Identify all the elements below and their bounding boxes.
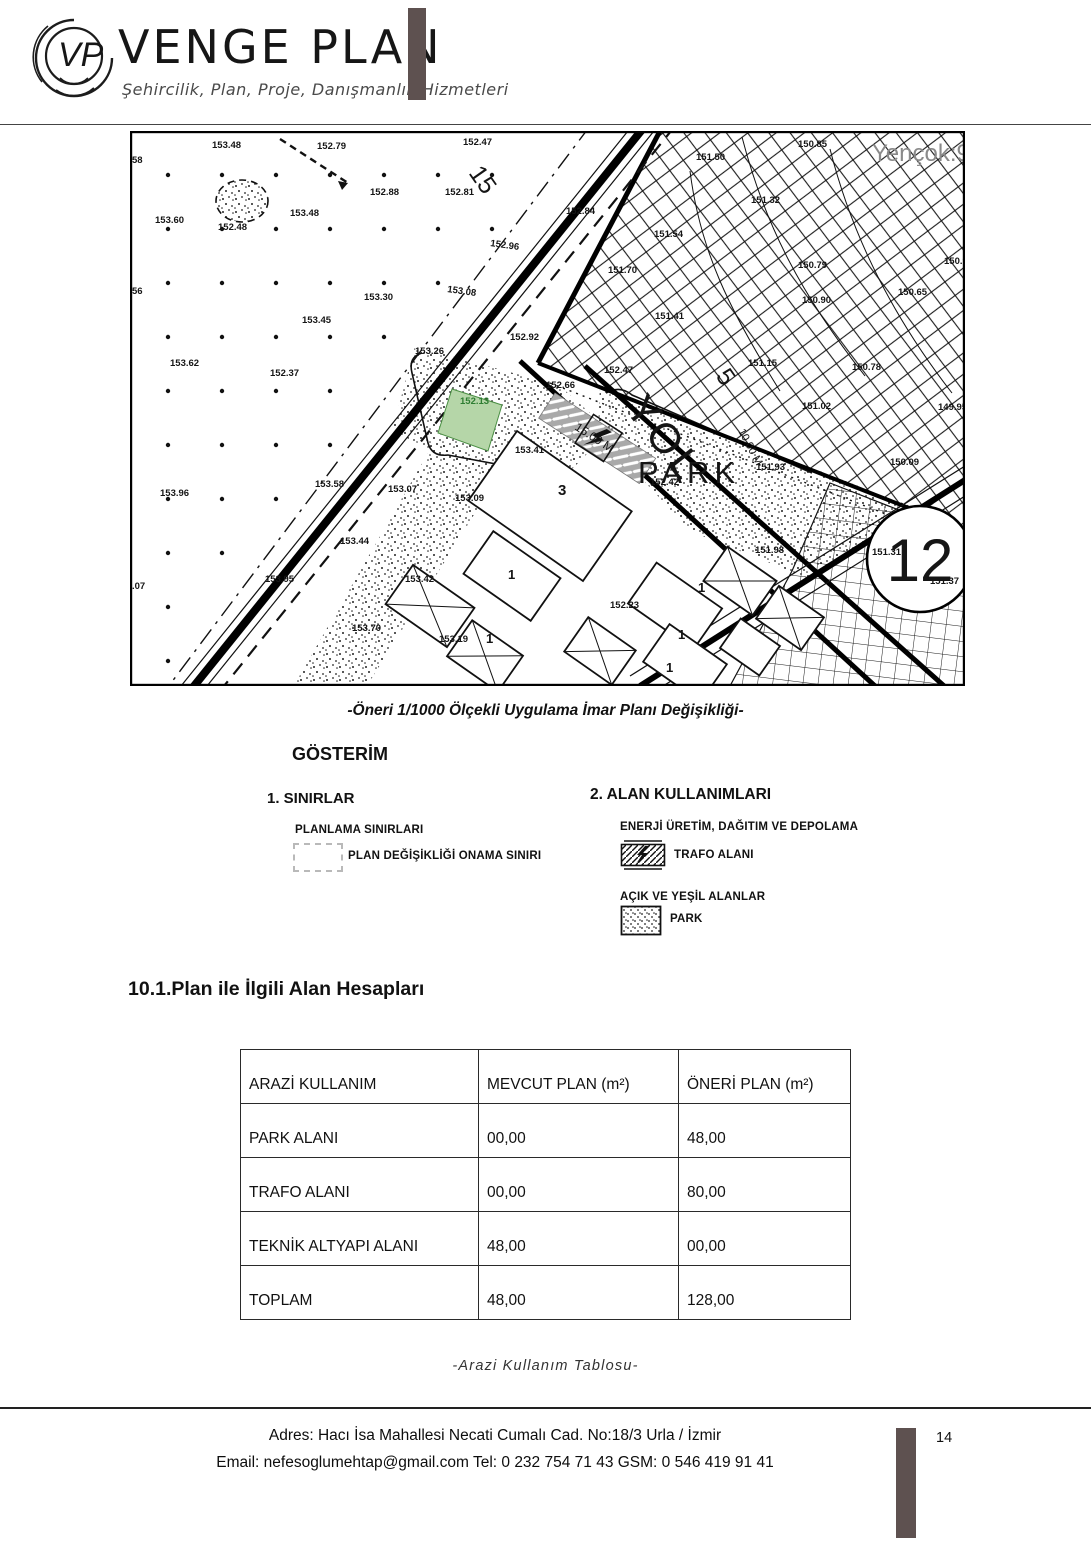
map-label: 152.66	[546, 380, 575, 391]
legend-group-yesil: AÇIK VE YEŞİL ALANLAR	[620, 891, 765, 903]
area-calculation-table: ARAZİ KULLANIMMEVCUT PLAN (m²)ÖNERİ PLAN…	[240, 1049, 851, 1320]
table-cell: 00,00	[479, 1158, 679, 1212]
footer-rule	[0, 1407, 1091, 1409]
legend-section1-title: 1. SINIRLAR	[267, 790, 355, 807]
map-label: 1	[508, 567, 515, 582]
footer-contact-block: Adres: Hacı İsa Mahallesi Necati Cumalı …	[95, 1422, 895, 1476]
map-label: 153.95	[265, 574, 295, 585]
table-cell: 48,00	[479, 1266, 679, 1320]
onama-siniri-symbol	[293, 843, 343, 872]
map-label: 149.95	[938, 402, 965, 413]
map-label: 56	[132, 286, 143, 297]
map-label: 151.02	[802, 401, 831, 412]
map-label: 152.13	[460, 396, 489, 407]
plan-map-figure: 153.48152.79152.47150.85Yençok:958152.88…	[130, 131, 965, 686]
table-cell: 80,00	[679, 1158, 851, 1212]
map-label: 153.70	[352, 623, 381, 634]
map-label: 153.07	[388, 484, 417, 495]
map-caption: -Öneri 1/1000 Ölçekli Uygulama İmar Plan…	[0, 702, 1091, 720]
table-cell: TOPLAM	[241, 1266, 479, 1320]
table-row: TRAFO ALANI00,0080,00	[241, 1158, 851, 1212]
map-label: 151.32	[751, 195, 780, 206]
table-cell: PARK ALANI	[241, 1104, 479, 1158]
map-label: 152.84	[566, 206, 596, 217]
table-cell: TRAFO ALANI	[241, 1158, 479, 1212]
column-header: MEVCUT PLAN (m²)	[479, 1050, 679, 1104]
column-header: ARAZİ KULLANIM	[241, 1050, 479, 1104]
legend-group-enerji: ENERJİ ÜRETİM, DAĞITIM VE DEPOLAMA	[620, 821, 858, 833]
table-cell: TEKNİK ALTYAPI ALANI	[241, 1212, 479, 1266]
document-page: VP VENGE PLAN Şehircilik, Plan, Proje, D…	[0, 0, 1091, 1544]
map-label: 153.42	[405, 574, 434, 585]
header-rule	[0, 124, 1091, 125]
map-label: 153.44	[340, 536, 370, 547]
trafo-symbol	[620, 839, 666, 871]
logo-monogram: VP	[58, 36, 104, 74]
map-label: 150.99	[944, 256, 965, 267]
page-number: 14	[936, 1430, 952, 1446]
map-label: 150.90	[802, 295, 831, 306]
header-accent-bar	[408, 8, 426, 100]
brand-tagline: Şehircilik, Plan, Proje, Danışmanlık Hiz…	[122, 80, 509, 99]
brand-title: VENGE PLAN	[118, 20, 443, 74]
map-label: 152.47	[463, 137, 492, 148]
map-label: 1	[666, 660, 673, 675]
map-label: 151.54	[654, 229, 684, 240]
map-label: 152.92	[510, 332, 539, 343]
map-label: Yençok:9	[872, 140, 965, 167]
legend-item-trafo: TRAFO ALANI	[674, 849, 754, 861]
map-label: .07	[132, 581, 145, 592]
map-label: 150.65	[898, 287, 928, 298]
map-label: 151.70	[608, 265, 637, 276]
map-label: 150.78	[852, 362, 881, 373]
map-label: 151.98	[755, 545, 784, 556]
map-label: 153.45	[302, 315, 332, 326]
table-cell: 48,00	[479, 1212, 679, 1266]
legend-item-park: PARK	[670, 913, 703, 925]
table-cell: 00,00	[679, 1212, 851, 1266]
map-label: 153.48	[212, 140, 241, 151]
table-row: TOPLAM48,00128,00	[241, 1266, 851, 1320]
park-symbol	[620, 905, 662, 936]
map-label: 150.09	[890, 457, 919, 468]
map-label: 153.48	[290, 208, 319, 219]
footer-contact: Email: nefesoglumehtap@gmail.com Tel: 0 …	[95, 1449, 895, 1476]
footer-address: Adres: Hacı İsa Mahallesi Necati Cumalı …	[95, 1422, 895, 1449]
venge-plan-logo: VP	[28, 12, 120, 108]
map-label: 152.48	[218, 222, 247, 233]
map-label: 1	[678, 627, 685, 642]
map-label: 150.79	[798, 260, 827, 271]
map-label: 1	[698, 580, 705, 595]
table-row: PARK ALANI00,0048,00	[241, 1104, 851, 1158]
map-label: 153.58	[315, 479, 344, 490]
plan-map: 153.48152.79152.47150.85Yençok:958152.88…	[130, 131, 965, 686]
map-label: 3	[558, 482, 566, 499]
legend-section2-title: 2. ALAN KULLANIMLARI	[590, 786, 771, 804]
map-label: 153.62	[170, 358, 199, 369]
map-label: 12	[887, 527, 954, 594]
map-label: 153.96	[160, 488, 189, 499]
map-label: 151.15	[748, 358, 778, 369]
map-label: 153.41	[515, 445, 545, 456]
map-label: 151.50	[696, 152, 725, 163]
map-label: 152.81	[445, 187, 475, 198]
parcel-blob	[216, 180, 268, 222]
legend-title: GÖSTERİM	[292, 744, 388, 765]
map-label: 150.85	[798, 139, 828, 150]
map-label: 152.88	[370, 187, 399, 198]
map-label: 153.26	[415, 346, 444, 357]
table-header-row: ARAZİ KULLANIMMEVCUT PLAN (m²)ÖNERİ PLAN…	[241, 1050, 851, 1104]
map-label: 153.19	[439, 634, 468, 645]
legend-item-onama-siniri: PLAN DEĞİŞİKLİĞİ ONAMA SINIRI	[348, 850, 541, 862]
table-cell: 128,00	[679, 1266, 851, 1320]
map-label: 153.60	[155, 215, 184, 226]
map-label: 152.23	[610, 600, 639, 611]
map-label: 58	[132, 155, 143, 166]
map-label: 152.47	[604, 365, 633, 376]
footer-accent-bar	[896, 1428, 916, 1538]
map-label: 153.09	[455, 493, 484, 504]
map-label: 151.41	[655, 311, 685, 322]
map-label: 1	[486, 631, 493, 646]
map-label: PARK	[638, 455, 740, 490]
table-cell: 48,00	[679, 1104, 851, 1158]
map-label: 153.30	[364, 292, 393, 303]
table-cell: 00,00	[479, 1104, 679, 1158]
map-label: 152.79	[317, 141, 346, 152]
map-label: 152.37	[270, 368, 299, 379]
column-header: ÖNERİ PLAN (m²)	[679, 1050, 851, 1104]
table-caption: -Arazi Kullanım Tablosu-	[0, 1358, 1091, 1374]
legend-subtitle-planlama: PLANLAMA SINIRLARI	[295, 824, 423, 836]
section-heading: 10.1.Plan ile İlgili Alan Hesapları	[128, 978, 424, 1001]
table-row: TEKNİK ALTYAPI ALANI48,0000,00	[241, 1212, 851, 1266]
